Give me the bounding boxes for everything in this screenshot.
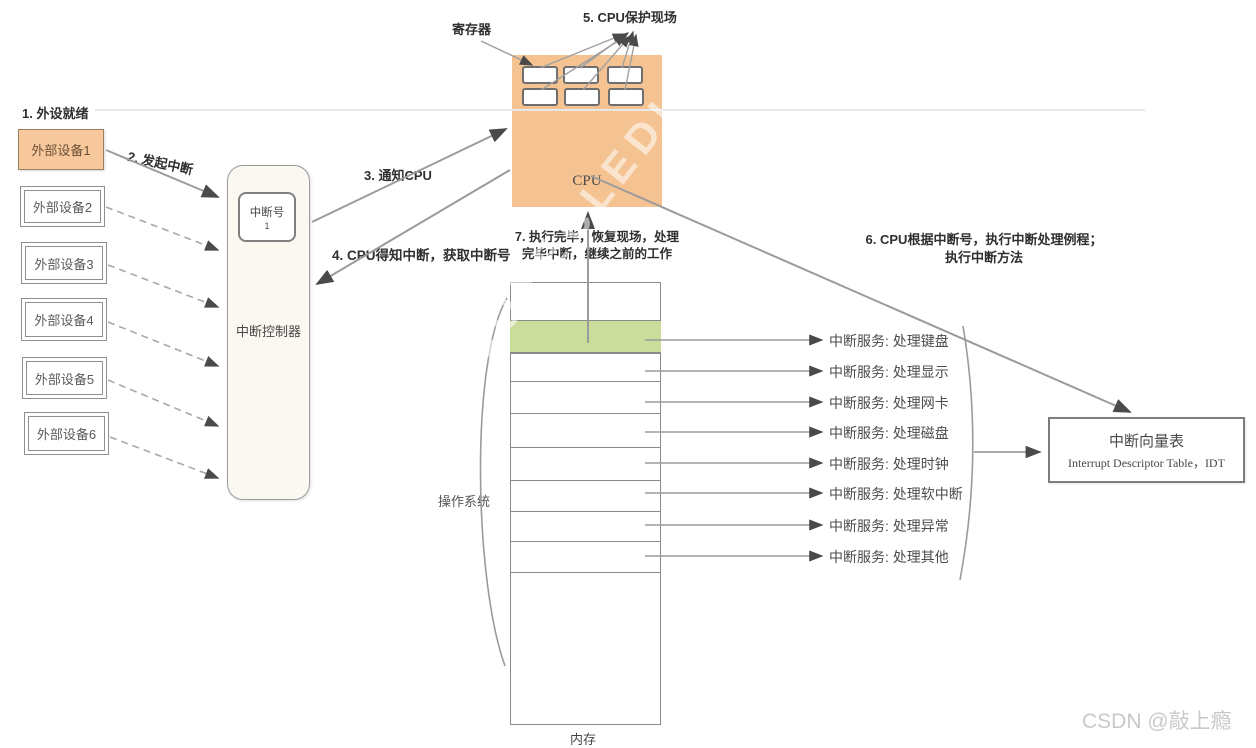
os-brace-label: 操作系统: [438, 491, 490, 510]
step4-label: 4. CPU得知中断，获取中断号: [332, 244, 511, 264]
cpu-register-cell: [522, 66, 558, 84]
arrow-device4-to-controller: [108, 322, 218, 366]
memory-row-line: [511, 480, 660, 481]
step5-label: 5. CPU保护现场: [583, 7, 677, 26]
service-label-display: 中断服务: 处理显示: [829, 362, 949, 382]
cpu-register-caption: 寄存器: [452, 19, 491, 38]
service-label-keyboard: 中断服务: 处理键盘: [829, 331, 949, 351]
cpu-box: CPU: [512, 55, 662, 207]
memory-highlight-row: [510, 320, 661, 353]
service-label-clock: 中断服务: 处理时钟: [829, 454, 949, 474]
step6-label: 6. CPU根据中断号，执行中断处理例程； 执行中断方法: [838, 231, 1130, 266]
service-label-other: 中断服务: 处理其他: [829, 547, 949, 567]
step3-label: 3. 通知CPU: [364, 165, 432, 184]
arrow-cpu-to-controller: [317, 170, 510, 284]
cpu-register-cell: [607, 66, 643, 84]
step7-label: 7. 执行完毕，恢复现场，处理 完毕中断，继续之前的工作: [506, 229, 688, 263]
arrow-device5-to-controller: [108, 380, 218, 426]
device-4-label: 外部设备4: [25, 302, 103, 337]
device-5-box: 外部设备5: [22, 357, 107, 399]
interrupt-number-box: 中断号 1: [238, 192, 296, 242]
cpu-register-cell: [522, 88, 558, 106]
service-label-network: 中断服务: 处理网卡: [829, 393, 949, 413]
interrupt-flow-diagram: 1. 外设就绪 外部设备1 外部设备2 外部设备3 外部设备4 外部设备5 外部…: [0, 0, 1256, 748]
device-6-box: 外部设备6: [24, 412, 109, 455]
idt-box: 中断向量表 Interrupt Descriptor Table，IDT: [1048, 417, 1245, 483]
memory-caption: 内存: [570, 729, 596, 748]
cpu-register-cell: [608, 88, 644, 106]
interrupt-number-label: 中断号: [250, 204, 285, 220]
service-label-disk: 中断服务: 处理磁盘: [829, 423, 949, 443]
memory-row-line: [511, 572, 660, 573]
arrow-device3-to-controller: [108, 265, 218, 307]
device-3-box: 外部设备3: [21, 242, 107, 284]
device-5-label: 外部设备5: [26, 361, 103, 395]
device-4-box: 外部设备4: [21, 298, 107, 341]
memory-row-line: [511, 511, 660, 512]
arrow-device6-to-controller: [110, 437, 218, 478]
device-6-label: 外部设备6: [28, 416, 105, 451]
cpu-register-cell: [563, 66, 599, 84]
services-brace: [960, 326, 973, 580]
step1-label: 1. 外设就绪: [22, 103, 88, 122]
interrupt-number-value: 1: [264, 221, 269, 231]
device-2-box: 外部设备2: [20, 186, 105, 227]
interrupt-controller-title: 中断控制器: [228, 321, 309, 340]
interrupt-controller-box: 中断号 1 中断控制器: [227, 165, 310, 500]
device-3-label: 外部设备3: [25, 246, 103, 280]
step2-label: 2. 发起中断: [126, 146, 195, 178]
csdn-watermark: CSDN @敲上瘾: [1082, 705, 1232, 735]
memory-row-line: [511, 381, 660, 382]
idt-title: 中断向量表: [1109, 430, 1184, 451]
service-label-exception: 中断服务: 处理异常: [829, 516, 949, 536]
idt-subtitle: Interrupt Descriptor Table，IDT: [1068, 454, 1225, 471]
memory-row-line: [511, 447, 660, 448]
device-1-box: 外部设备1: [18, 129, 104, 170]
device-2-label: 外部设备2: [24, 190, 101, 223]
memory-row-line: [511, 413, 660, 414]
memory-row-line: [511, 353, 660, 354]
memory-row-line: [511, 541, 660, 542]
cpu-title: CPU: [512, 173, 662, 190]
arrow-device2-to-controller: [106, 207, 218, 250]
service-label-softirq: 中断服务: 处理软中断: [829, 484, 963, 504]
os-brace: [480, 298, 507, 666]
cpu-register-cell: [564, 88, 600, 106]
